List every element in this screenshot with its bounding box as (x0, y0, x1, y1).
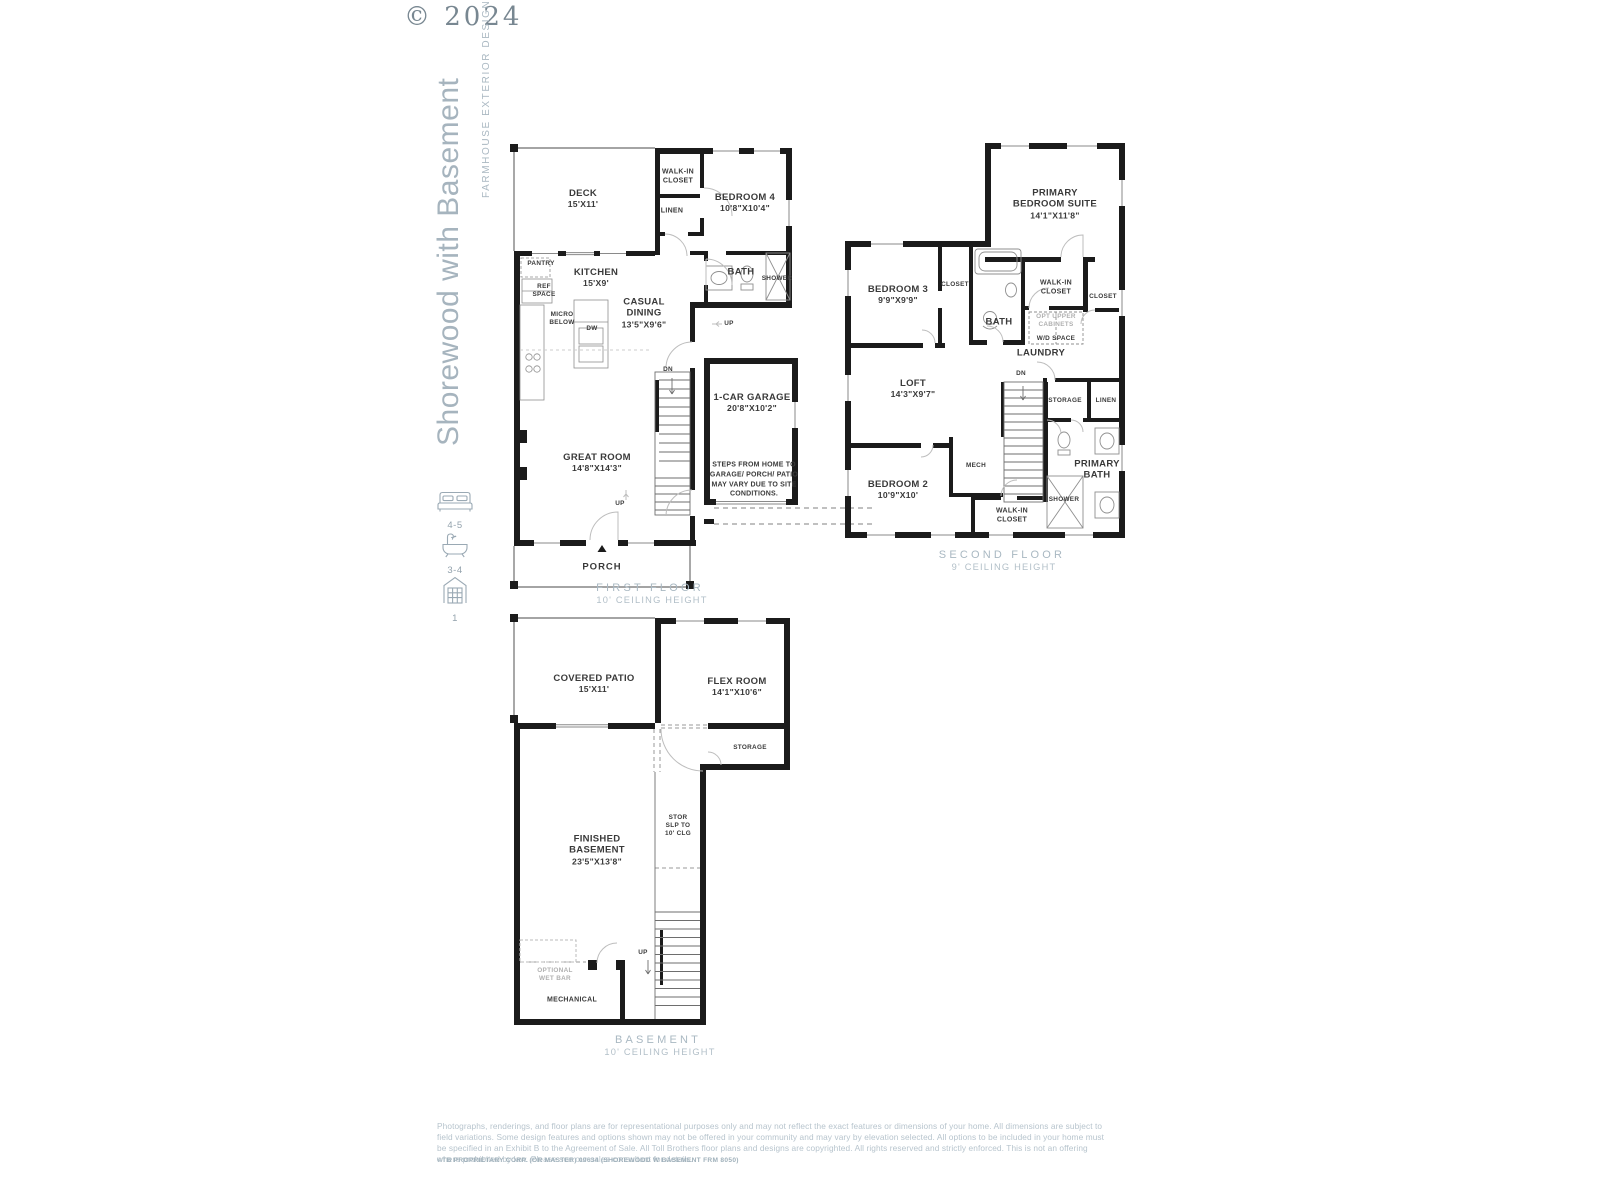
label-stor-slp: STOR SLP TO 10' CLG (662, 814, 694, 838)
room-name: BEDROOM 4 (715, 192, 775, 203)
label-up: UP (615, 500, 624, 508)
label-dn: DN (663, 366, 673, 374)
room-label-bedroom3: BEDROOM 3 9'9"X9'9" (868, 284, 928, 306)
room-dim: 23'5"X13'8" (560, 856, 634, 866)
garage-count-label: 1 (441, 613, 469, 624)
note-steps-disclaimer: STEPS FROM HOME TO GARAGE/ PORCH/ PATIO … (708, 460, 800, 499)
second-floor-ceiling: 9' CEILING HEIGHT (952, 562, 1057, 572)
first-floor-plan: DECK 15'X11' WALK-IN CLOSET LINEN BEDROO… (508, 140, 880, 610)
room-name: COVERED PATIO (553, 673, 634, 684)
room-label-dw: DW (586, 325, 597, 333)
room-name: FINISHED BASEMENT (560, 833, 634, 856)
room-label-bedroom2: BEDROOM 2 10'9"X10' (868, 479, 928, 501)
room-label-primary-bath: PRIMARY BATH (1068, 459, 1126, 482)
room-label-covered-patio: COVERED PATIO 15'X11' (553, 673, 634, 695)
second-floor-title: SECOND FLOOR (939, 549, 1065, 561)
room-label-kitchen: KITCHEN 15'X9' (574, 267, 618, 289)
room-name: LOFT (891, 378, 936, 389)
room-label-primary-suite: PRIMARY BEDROOM SUITE 14'1"X11'8" (1011, 187, 1099, 220)
basement-stairs (646, 772, 701, 1019)
room-label-ref-space: REF SPACE (529, 283, 559, 299)
room-label-linen2: LINEN (1096, 397, 1117, 405)
basement-ceiling: 10' CEILING HEIGHT (604, 1047, 715, 1057)
label-optional-wet-bar: OPTIONAL WET BAR (533, 967, 577, 983)
room-label-garage: 1-CAR GARAGE 20'8"X10'2" (710, 392, 794, 414)
room-dim: 13'5"X9'6" (614, 319, 674, 329)
room-name: BEDROOM 3 (868, 284, 928, 295)
bath-icon (440, 531, 470, 558)
floor-plan-sheet: © 2024 Shorewood with Basement FARMHOUSE… (0, 0, 1600, 1200)
room-label-storage-basement: STORAGE (733, 744, 767, 752)
basement-plan: COVERED PATIO 15'X11' FLEX ROOM 14'1"X10… (508, 612, 800, 1064)
room-name: 1-CAR GARAGE (710, 392, 794, 403)
garage-count: 1 (441, 575, 469, 624)
room-label-bath: BATH (728, 266, 755, 277)
plan-title: Shorewood with Basement (432, 32, 468, 446)
room-name: GREAT ROOM (563, 452, 631, 463)
room-dim: 15'X9' (574, 279, 618, 289)
room-label-laundry: LAUNDRY (1017, 347, 1065, 358)
room-dim: 14'3"X9'7" (891, 390, 936, 400)
label-opt-upper-cabinets: OPT UPPER CABINETS (1028, 313, 1084, 329)
room-label-walkin-closet-bed2: WALK-IN CLOSET (988, 507, 1036, 525)
bed-count: 4-5 (435, 488, 475, 531)
room-label-shower2: SHOWER (1049, 496, 1080, 504)
room-label-micro-below: MICRO BELOW (544, 311, 580, 327)
first-floor-ceiling: 10' CEILING HEIGHT (596, 595, 707, 605)
label-up-basement: UP (638, 949, 647, 957)
room-dim: 14'8"X14'3" (563, 464, 631, 474)
room-name: DECK (568, 188, 599, 199)
room-dim: 10'9"X10' (868, 491, 928, 501)
room-dim: 20'8"X10'2" (710, 404, 794, 414)
copyright-year: © 2024 (404, 2, 522, 32)
room-name: KITCHEN (574, 267, 618, 278)
room-dim: 15'X11' (553, 685, 634, 695)
room-label-bath2: BATH (986, 316, 1013, 327)
room-label-shower: SHOWER (762, 275, 793, 283)
room-label-loft: LOFT 14'3"X9'7" (891, 378, 936, 400)
first-floor-stairs (655, 372, 690, 515)
room-dim: 14'1"X11'8" (1011, 210, 1099, 220)
bed-count-label: 4-5 (435, 520, 475, 531)
plan-subtitle: FARMHOUSE EXTERIOR DESIGN (481, 28, 495, 198)
room-dim: 9'9"X9'9" (868, 296, 928, 306)
garage-icon (441, 575, 469, 606)
label-wd-space: W/D SPACE (1037, 335, 1075, 343)
room-dim: 10'8"X10'4" (715, 204, 775, 214)
basement-title: BASEMENT (615, 1034, 701, 1046)
proprietary-note: ©TB PROPRIETARY CORP. (OR MASTER) 09634 … (437, 1157, 739, 1164)
room-name: CASUAL DINING (614, 296, 674, 319)
room-label-mechanical: MECHANICAL (547, 997, 597, 1006)
room-label-walkin-closet-primary: WALK-IN CLOSET (1033, 279, 1079, 297)
first-floor-drawing (508, 140, 880, 610)
room-label-great-room: GREAT ROOM 14'8"X14'3" (563, 452, 631, 474)
room-dim: 15'X11' (568, 200, 599, 210)
room-label-bedroom4: BEDROOM 4 10'8"X10'4" (715, 192, 775, 214)
second-floor-plan: PRIMARY BEDROOM SUITE 14'1"X11'8" BEDROO… (843, 140, 1131, 585)
room-label-closet: CLOSET (941, 281, 969, 289)
room-label-linen: LINEN (661, 208, 684, 217)
room-name: BEDROOM 2 (868, 479, 928, 490)
first-floor-title: FIRST FLOOR (596, 582, 704, 594)
room-label-mech: MECH (966, 462, 986, 470)
bath-count: 3-4 (440, 531, 470, 576)
room-name: FLEX ROOM (707, 676, 766, 687)
bed-icon (436, 488, 474, 513)
room-label-flex-room: FLEX ROOM 14'1"X10'6" (707, 676, 766, 698)
second-floor-stairs (1004, 382, 1043, 502)
room-label-closet-hall: CLOSET (1089, 293, 1117, 301)
label-dn-2: DN (1016, 370, 1026, 378)
room-label-casual-dining: CASUAL DINING 13'5"X9'6" (614, 296, 674, 329)
room-label-storage2: STORAGE (1048, 397, 1082, 405)
room-dim: 14'1"X10'6" (707, 688, 766, 698)
room-label-pantry: PANTRY (527, 260, 554, 268)
label-up-bath-landing: UP (724, 320, 733, 328)
room-label-finished-basement: FINISHED BASEMENT 23'5"X13'8" (560, 833, 634, 866)
room-label-walkin-closet: WALK-IN CLOSET (655, 168, 701, 186)
room-label-porch: PORCH (582, 561, 621, 572)
room-label-deck: DECK 15'X11' (568, 188, 599, 210)
room-name: PRIMARY BEDROOM SUITE (1011, 187, 1099, 210)
